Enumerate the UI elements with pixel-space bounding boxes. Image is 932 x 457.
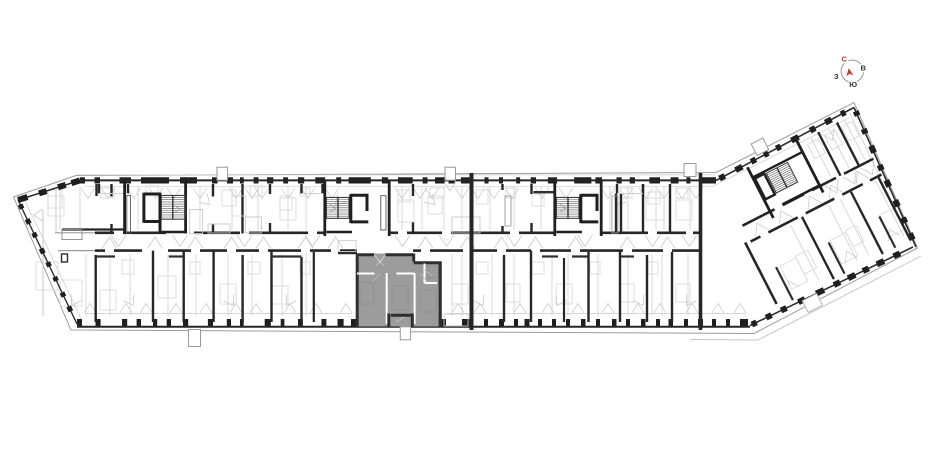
- svg-text:С: С: [842, 55, 848, 64]
- svg-text:В: В: [860, 64, 866, 73]
- svg-text:Ю: Ю: [849, 80, 857, 89]
- svg-text:З: З: [834, 72, 839, 81]
